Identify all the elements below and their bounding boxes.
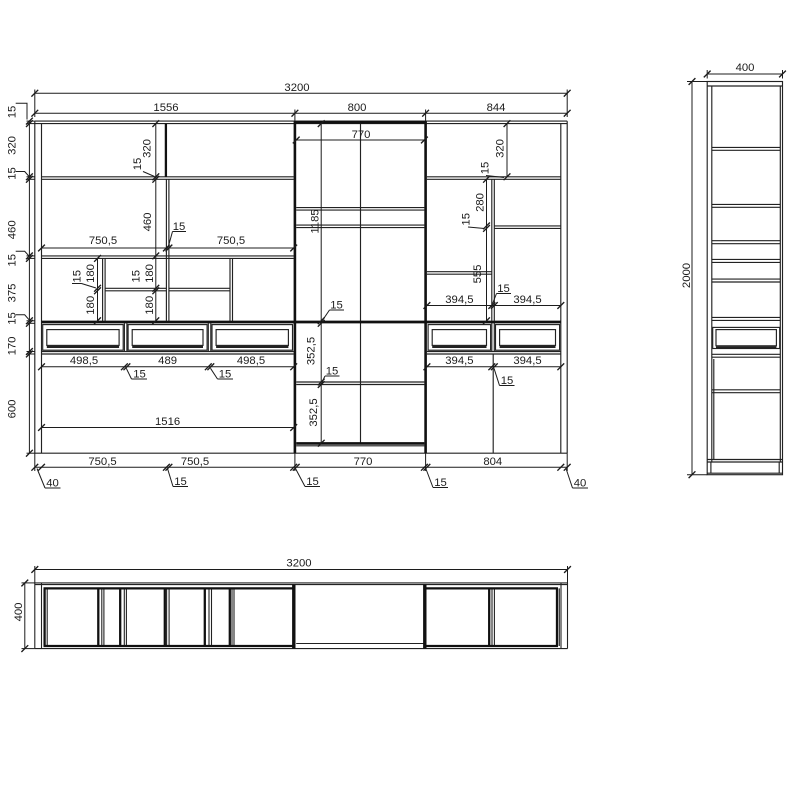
svg-text:394,5: 394,5 xyxy=(445,294,473,306)
svg-text:770: 770 xyxy=(352,129,371,141)
svg-text:15: 15 xyxy=(7,106,19,119)
svg-text:400: 400 xyxy=(736,62,755,74)
svg-text:804: 804 xyxy=(483,456,502,468)
svg-text:460: 460 xyxy=(7,220,19,239)
svg-text:15: 15 xyxy=(7,167,19,180)
svg-text:800: 800 xyxy=(348,102,367,114)
svg-text:15: 15 xyxy=(131,270,143,283)
svg-text:180: 180 xyxy=(85,264,97,283)
svg-text:15: 15 xyxy=(480,162,492,175)
svg-text:498,5: 498,5 xyxy=(70,355,98,367)
svg-text:180: 180 xyxy=(85,296,97,315)
svg-text:15: 15 xyxy=(219,369,232,381)
svg-text:180: 180 xyxy=(144,264,156,283)
svg-text:15: 15 xyxy=(434,477,447,489)
svg-text:3200: 3200 xyxy=(284,82,309,94)
svg-text:15: 15 xyxy=(306,476,319,488)
svg-text:15: 15 xyxy=(497,283,510,295)
svg-text:180: 180 xyxy=(144,296,156,315)
svg-text:15: 15 xyxy=(326,366,339,378)
svg-text:15: 15 xyxy=(174,476,187,488)
svg-text:400: 400 xyxy=(13,603,25,622)
svg-text:15: 15 xyxy=(132,158,144,171)
svg-text:3200: 3200 xyxy=(286,558,311,570)
svg-text:40: 40 xyxy=(46,478,59,490)
svg-text:750,5: 750,5 xyxy=(89,235,117,247)
svg-text:1516: 1516 xyxy=(155,416,180,428)
svg-text:15: 15 xyxy=(133,369,146,381)
svg-text:2000: 2000 xyxy=(681,263,693,288)
svg-text:320: 320 xyxy=(142,139,154,158)
svg-text:40: 40 xyxy=(574,478,587,490)
svg-text:600: 600 xyxy=(7,400,19,419)
svg-text:394,5: 394,5 xyxy=(445,355,473,367)
svg-text:394,5: 394,5 xyxy=(513,294,541,306)
svg-text:460: 460 xyxy=(142,213,154,232)
svg-text:555: 555 xyxy=(472,265,484,284)
svg-text:750,5: 750,5 xyxy=(217,235,245,247)
svg-text:15: 15 xyxy=(501,375,514,387)
svg-text:15: 15 xyxy=(173,221,186,233)
svg-text:1185: 1185 xyxy=(310,209,322,233)
svg-text:15: 15 xyxy=(72,270,84,283)
svg-text:750,5: 750,5 xyxy=(88,456,116,468)
svg-text:280: 280 xyxy=(475,193,487,212)
svg-text:1556: 1556 xyxy=(153,102,178,114)
svg-text:352,5: 352,5 xyxy=(308,398,320,426)
svg-text:750,5: 750,5 xyxy=(181,456,209,468)
svg-text:375: 375 xyxy=(7,284,19,303)
svg-text:498,5: 498,5 xyxy=(237,355,265,367)
svg-text:320: 320 xyxy=(7,136,19,155)
svg-text:770: 770 xyxy=(354,456,373,468)
svg-text:15: 15 xyxy=(7,254,19,267)
svg-text:844: 844 xyxy=(487,102,506,114)
svg-text:15: 15 xyxy=(461,213,473,226)
svg-text:170: 170 xyxy=(7,337,19,356)
svg-text:489: 489 xyxy=(158,355,177,367)
svg-text:15: 15 xyxy=(7,312,19,325)
svg-text:15: 15 xyxy=(330,300,343,312)
svg-text:394,5: 394,5 xyxy=(513,355,541,367)
svg-text:352,5: 352,5 xyxy=(306,337,318,365)
svg-text:320: 320 xyxy=(495,139,507,158)
